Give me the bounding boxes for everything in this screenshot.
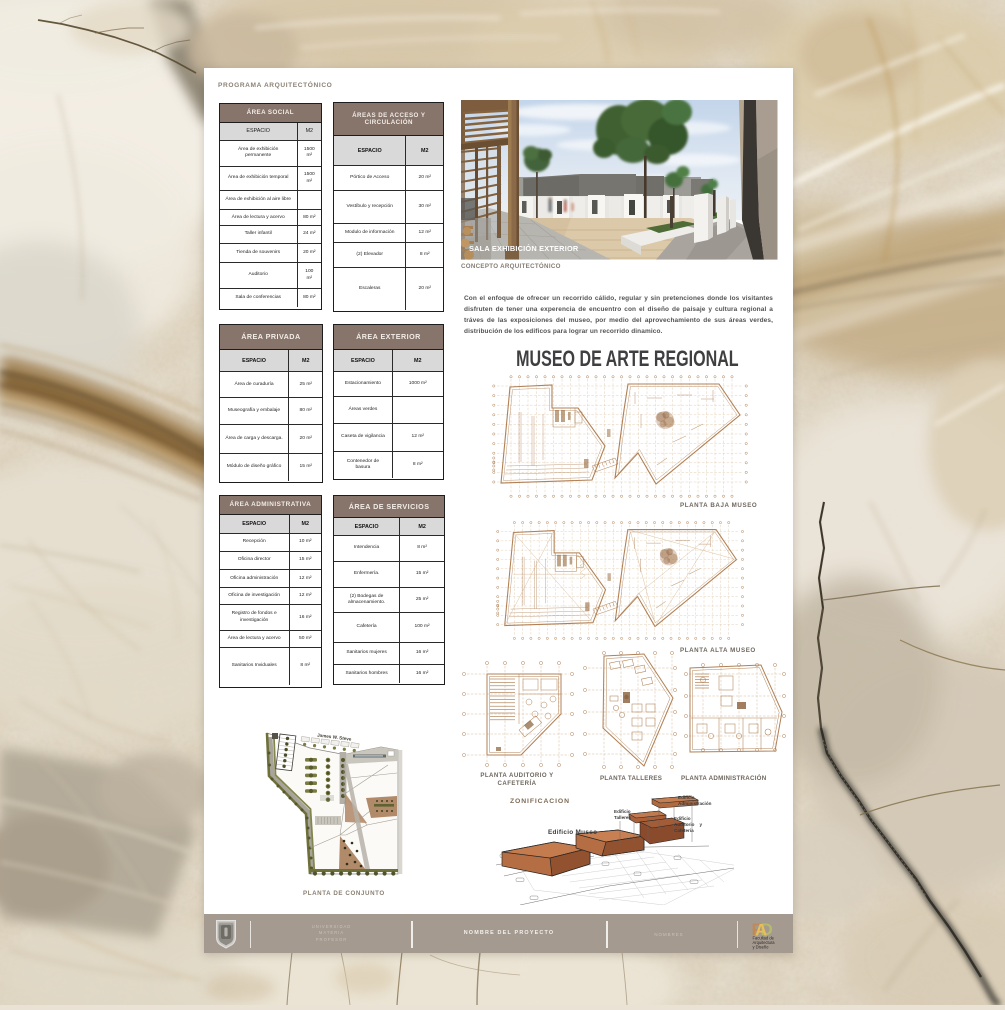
svg-text:SALA EXHIBICIÓN EXTERIOR: SALA EXHIBICIÓN EXTERIOR xyxy=(469,244,579,253)
svg-text:y Diseño: y Diseño xyxy=(753,945,770,950)
